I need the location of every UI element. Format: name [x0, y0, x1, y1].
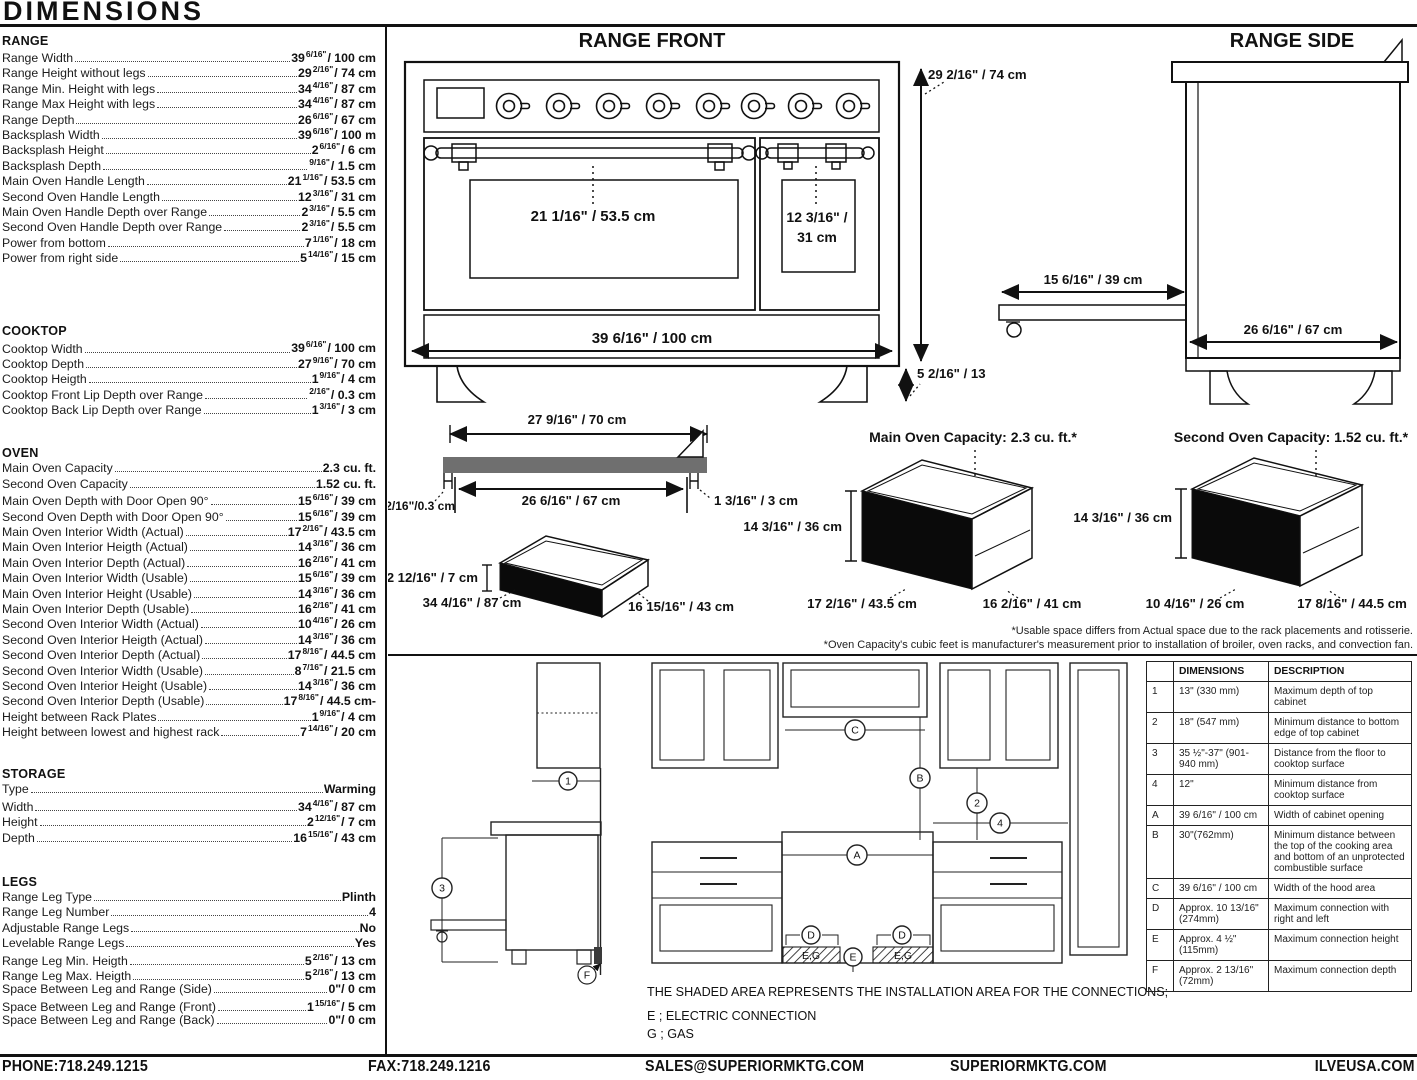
spec-label: Range Max Height with legs — [2, 97, 155, 111]
spec-value: 4 — [369, 905, 376, 919]
main-handle-dim: 21 1/16" / 53.5 cm — [531, 208, 656, 225]
spec-value: 143/16"/ 36 cm — [298, 538, 376, 554]
marker-B: B — [916, 773, 923, 785]
spec-row: Main Oven Depth with Door Open 90° 156/1… — [2, 492, 376, 507]
dotted-leader — [94, 900, 341, 901]
spec-value: 9/16"/ 1.5 cm — [308, 157, 376, 173]
spec-value: 212/16"/ 7 cm — [307, 813, 376, 829]
spec-value: 0"/ 0 cm — [328, 982, 376, 996]
door-caster — [1007, 323, 1021, 337]
row-description: Maximum connection depth — [1269, 961, 1412, 992]
spec-row: Main Oven Handle Length 211/16"/ 53.5 cm — [2, 172, 376, 187]
main-oven-handle — [424, 144, 756, 170]
spec-value: 396/16"/ 100 cm — [291, 339, 376, 355]
spec-label: Range Depth — [2, 113, 74, 127]
spec-label: Main Oven Interior Heigth (Actual) — [2, 540, 188, 554]
row-id: 4 — [1147, 775, 1174, 806]
section-title: RANGE — [2, 34, 376, 48]
spec-row: Range Leg Number 4 — [2, 905, 376, 920]
dotted-leader — [157, 107, 297, 108]
dotted-leader — [209, 215, 300, 216]
spec-row: Main Oven Interior Depth (Actual) 162/16… — [2, 554, 376, 569]
dotted-leader — [130, 964, 304, 965]
dotted-leader — [86, 367, 297, 368]
spec-value: 1.52 cu. ft. — [316, 477, 376, 491]
dotted-leader — [148, 76, 297, 77]
spec-value: 71/16"/ 18 cm — [305, 234, 376, 250]
main-oven-height-dim: 14 3/16" / 36 cm — [743, 519, 842, 534]
marker-F: F — [584, 970, 590, 982]
front-right-leg — [820, 366, 867, 402]
marker-D-left: D — [807, 930, 815, 942]
spec-value: 13/16"/ 3 cm — [312, 401, 376, 417]
marker-E: E — [849, 952, 856, 964]
spec-row: Range Width 396/16"/ 100 cm — [2, 49, 376, 64]
drawer-height-dim: 2 12/16" / 7 cm — [388, 570, 478, 585]
spec-row: Second Oven Capacity 1.52 cu. ft. — [2, 477, 376, 492]
row-id: A — [1147, 806, 1174, 826]
footer-ilve-site: ILVEUSA.COM — [1315, 1058, 1415, 1076]
range-diagrams: RANGE FRONT — [388, 26, 1417, 655]
storage-drawer-diagram: 2 12/16" / 7 cm 34 4/16" / 87 cm 16 15/1… — [388, 536, 734, 617]
dotted-leader — [131, 931, 358, 932]
install-dimensions-table: DIMENSIONS DESCRIPTION 1 13" (330 mm) Ma… — [1146, 661, 1412, 992]
dotted-leader — [115, 471, 322, 472]
second-oven-height-dim: 14 3/16" / 36 cm — [1073, 510, 1172, 525]
install-side-view: 1 F 3 — [431, 663, 602, 984]
spec-row: Adjustable Range Legs No — [2, 921, 376, 936]
range-height-dim: 29 2/16" / 74 cm — [928, 67, 1027, 82]
footer-email: SALES@SUPERIORMKTG.COM — [645, 1058, 864, 1076]
spec-value: 104/16"/ 26 cm — [298, 615, 376, 631]
door-open-dim: 15 6/16" / 39 cm — [1044, 272, 1143, 287]
legend-gas: G ; GAS — [647, 1027, 694, 1041]
spec-value: 2/16"/ 0.3 cm — [308, 386, 376, 402]
spec-value: 87/16"/ 21.5 cm — [295, 662, 376, 678]
second-handle-dim-2: 31 cm — [797, 229, 837, 245]
spec-label: Range Leg Type — [2, 890, 92, 904]
spec-row: Second Oven Interior Depth (Usable) 178/… — [2, 692, 376, 707]
main-oven-panel — [862, 491, 972, 589]
spec-row: Cooktop Back Lip Depth over Range 13/16"… — [2, 401, 376, 416]
spec-value: 19/16"/ 4 cm — [312, 370, 376, 386]
spec-label: Second Oven Interior Heigth (Actual) — [2, 633, 203, 647]
install-elevation: C B 2 4 A — [652, 663, 1127, 972]
spec-row: Cooktop Width 396/16"/ 100 cm — [2, 339, 376, 354]
side-left-leg — [1210, 371, 1248, 404]
spec-label: Adjustable Range Legs — [2, 921, 129, 935]
eg-label-left: E,G — [802, 950, 820, 962]
spec-label: Main Oven Interior Width (Usable) — [2, 571, 188, 585]
spec-section-oven: OVEN Main Oven Capacity 2.3 cu. ft. Seco… — [2, 446, 376, 738]
spec-label: Range Leg Min. Heigth — [2, 954, 128, 968]
eg-label-right: E,G — [894, 950, 912, 962]
spec-row: Cooktop Heigth 19/16"/ 4 cm — [2, 370, 376, 385]
row-id: D — [1147, 899, 1174, 930]
spec-value: 514/16"/ 15 cm — [300, 249, 376, 265]
spec-column: RANGE Range Width 396/16"/ 100 cm Range … — [0, 27, 387, 1054]
col-description: DESCRIPTION — [1269, 662, 1412, 682]
spec-label: Second Oven Interior Depth (Actual) — [2, 648, 200, 662]
row-dimension: 39 6/16" / 100 cm — [1174, 879, 1269, 899]
row-dimension: 35 ½"-37" (901-940 mm) — [1174, 744, 1269, 775]
dotted-leader — [31, 792, 323, 793]
spec-row: Main Oven Interior Heigth (Actual) 143/1… — [2, 538, 376, 553]
spec-row: Second Oven Interior Width (Actual) 104/… — [2, 615, 376, 630]
row-dimension: 13" (330 mm) — [1174, 682, 1269, 713]
dotted-leader — [133, 979, 304, 980]
dotted-leader — [224, 230, 300, 231]
spec-value: 344/16"/ 87 cm — [298, 80, 376, 96]
table-row: D Approx. 10 13/16" (274mm) Maximum conn… — [1147, 899, 1412, 930]
marker-1: 1 — [565, 776, 571, 788]
spec-row: Depth 1615/16"/ 43 cm — [2, 829, 376, 844]
leg-height-dim: 5 2/16" / 13 — [917, 366, 986, 381]
spec-label: Width — [2, 800, 33, 814]
range-front-diagram: RANGE FRONT — [405, 30, 1027, 402]
table-row: A 39 6/16" / 100 cm Width of cabinet ope… — [1147, 806, 1412, 826]
spec-value: 19/16"/ 4 cm — [312, 708, 376, 724]
dotted-leader — [191, 612, 297, 613]
spec-label: Second Oven Interior Height (Usable) — [2, 679, 207, 693]
spec-label: Range Height without legs — [2, 66, 146, 80]
spec-value: 344/16"/ 87 cm — [298, 798, 376, 814]
row-id: 1 — [1147, 682, 1174, 713]
spec-value: 266/16"/ 67 cm — [298, 111, 376, 127]
legend-electric: E ; ELECTRIC CONNECTION — [647, 1009, 816, 1023]
dotted-leader — [89, 382, 311, 383]
second-oven-width-dim: 10 4/16" / 26 cm — [1146, 596, 1245, 611]
dotted-leader — [205, 398, 307, 399]
spec-label: Power from right side — [2, 251, 118, 265]
dotted-leader — [194, 597, 297, 598]
spec-row: Levelable Range Legs Yes — [2, 936, 376, 951]
open-door-shelf — [999, 305, 1186, 320]
spec-row: Range Leg Min. Heigth 52/16"/ 13 cm — [2, 952, 376, 967]
dotted-leader — [147, 184, 287, 185]
spec-label: Second Oven Depth with Door Open 90° — [2, 510, 224, 524]
spec-row: Space Between Leg and Range (Back) 0"/ 0… — [2, 1013, 376, 1028]
drawer-depth-dim: 16 15/16" / 43 cm — [628, 599, 734, 614]
back-lip-dim: 1 3/16" / 3 cm — [714, 493, 798, 508]
row-dimension: 12" — [1174, 775, 1269, 806]
dotted-leader — [35, 810, 297, 811]
spec-row: Power from bottom 71/16"/ 18 cm — [2, 234, 376, 249]
spec-value: 143/16"/ 36 cm — [298, 585, 376, 601]
spec-label: Range Min. Height with legs — [2, 82, 155, 96]
spec-row: Main Oven Interior Depth (Usable) 162/16… — [2, 600, 376, 615]
footnote-1: *Usable space differs from Actual space … — [1011, 625, 1413, 637]
spec-row: Main Oven Capacity 2.3 cu. ft. — [2, 461, 376, 476]
dotted-leader — [201, 627, 297, 628]
connection-zone-strip — [594, 947, 602, 964]
row-description: Distance from the floor to cooktop surfa… — [1269, 744, 1412, 775]
spec-row: Second Oven Interior Heigth (Actual) 143… — [2, 631, 376, 646]
spec-label: Cooktop Heigth — [2, 372, 87, 386]
install-note: THE SHADED AREA REPRESENTS THE INSTALLAT… — [647, 985, 1168, 999]
dotted-leader — [211, 504, 297, 505]
spec-label: Space Between Leg and Range (Side) — [2, 982, 212, 996]
spec-value: 714/16"/ 20 cm — [300, 723, 376, 739]
dotted-leader — [187, 566, 297, 567]
spec-label: Main Oven Handle Depth over Range — [2, 205, 207, 219]
cooktop-inner-width-dim: 26 6/16" / 67 cm — [522, 493, 621, 508]
spec-label: Second Oven Interior Depth (Usable) — [2, 694, 204, 708]
marker-D-right: D — [898, 930, 906, 942]
spec-label: Cooktop Depth — [2, 357, 84, 371]
spec-label: Main Oven Depth with Door Open 90° — [2, 494, 209, 508]
spec-value: 143/16"/ 36 cm — [298, 677, 376, 693]
spec-row: Backsplash Depth 9/16"/ 1.5 cm — [2, 157, 376, 172]
second-oven-capacity-title: Second Oven Capacity: 1.52 cu. ft.* — [1174, 429, 1409, 445]
row-dimension: Approx. 2 13/16" (72mm) — [1174, 961, 1269, 992]
spec-label: Depth — [2, 831, 35, 845]
marker-4: 4 — [997, 818, 1003, 830]
range-depth-dim: 26 6/16" / 67 cm — [1244, 322, 1343, 337]
spec-row: Second Oven Handle Length 123/16"/ 31 cm — [2, 188, 376, 203]
spec-value: 156/16"/ 39 cm — [298, 569, 376, 585]
spec-row: Main Oven Interior Width (Usable) 156/16… — [2, 569, 376, 584]
dotted-leader — [226, 520, 297, 521]
row-description: Minimum distance between the top of the … — [1269, 826, 1412, 879]
spec-value: 292/16"/ 74 cm — [298, 64, 376, 80]
spec-value: 396/16"/ 100 m — [298, 126, 376, 142]
row-dimension: Approx. 4 ½" (115mm) — [1174, 930, 1269, 961]
dotted-leader — [75, 61, 290, 62]
dotted-leader — [162, 200, 297, 201]
dotted-leader — [37, 841, 292, 842]
drawer-width-dim: 34 4/16" / 87 cm — [423, 595, 522, 610]
spec-label: Range Leg Max. Heigth — [2, 969, 131, 983]
dotted-leader — [40, 825, 306, 826]
footer-rule — [0, 1054, 1417, 1057]
spec-row: Space Between Leg and Range (Front) 115/… — [2, 998, 376, 1013]
spec-value: 52/16"/ 13 cm — [305, 967, 376, 983]
spec-row: Second Oven Handle Depth over Range 23/1… — [2, 218, 376, 233]
row-dimension: 18" (547 mm) — [1174, 713, 1269, 744]
spec-label: Backsplash Height — [2, 143, 104, 157]
spec-row: Range Leg Type Plinth — [2, 890, 376, 905]
dotted-leader — [214, 992, 328, 993]
main-oven-depth-dim: 16 2/16" / 41 cm — [983, 596, 1082, 611]
second-handle-dim-1: 12 3/16" / — [786, 209, 847, 225]
main-oven-capacity-title: Main Oven Capacity: 2.3 cu. ft.* — [869, 429, 1077, 445]
front-lip-dim: 2/16"/0.3 cm — [388, 499, 455, 513]
dotted-leader — [205, 674, 294, 675]
spec-value: 2.3 cu. ft. — [323, 461, 376, 475]
footer-fax: FAX:718.249.1216 — [368, 1058, 491, 1076]
dotted-leader — [106, 153, 311, 154]
spec-label: Cooktop Back Lip Depth over Range — [2, 403, 202, 417]
spec-row: Backsplash Height 26/16"/ 6 cm — [2, 141, 376, 156]
row-id: E — [1147, 930, 1174, 961]
row-description: Maximum connection with right and left — [1269, 899, 1412, 930]
spec-row: Cooktop Front Lip Depth over Range 2/16"… — [2, 386, 376, 401]
spec-row: Main Oven Handle Depth over Range 23/16"… — [2, 203, 376, 218]
control-display — [437, 88, 484, 118]
spec-row: Width 344/16"/ 87 cm — [2, 798, 376, 813]
dotted-leader — [190, 550, 297, 551]
table-row: F Approx. 2 13/16" (72mm) Maximum connec… — [1147, 961, 1412, 992]
spec-row: Cooktop Depth 279/16"/ 70 cm — [2, 355, 376, 370]
spec-value: 396/16"/ 100 cm — [291, 49, 376, 65]
dotted-leader — [221, 735, 299, 736]
section-title: COOKTOP — [2, 324, 376, 338]
second-oven-panel — [1192, 489, 1300, 586]
spec-label: Main Oven Interior Height (Usable) — [2, 587, 192, 601]
spec-value: 178/16"/ 44.5 cm — [288, 646, 376, 662]
spec-value: 344/16"/ 87 cm — [298, 95, 376, 111]
spec-label: Second Oven Interior Width (Actual) — [2, 617, 199, 631]
spec-row: Range Min. Height with legs 344/16"/ 87 … — [2, 80, 376, 95]
table-row: 2 18" (547 mm) Minimum distance to botto… — [1147, 713, 1412, 744]
row-description: Width of cabinet opening — [1269, 806, 1412, 826]
row-id: C — [1147, 879, 1174, 899]
footer-phone: PHONE:718.249.1215 — [2, 1058, 148, 1076]
spec-value: 1615/16"/ 43 cm — [293, 829, 376, 845]
dotted-leader — [126, 946, 353, 947]
row-id: 2 — [1147, 713, 1174, 744]
spec-label: Main Oven Interior Width (Actual) — [2, 525, 184, 539]
spec-value: 156/16"/ 39 cm — [298, 492, 376, 508]
range-front-title: RANGE FRONT — [579, 30, 726, 52]
row-description: Minimum distance to bottom edge of top c… — [1269, 713, 1412, 744]
spec-value: 0"/ 0 cm — [328, 1013, 376, 1027]
spec-row: Second Oven Depth with Door Open 90° 156… — [2, 508, 376, 523]
row-id: B — [1147, 826, 1174, 879]
dotted-leader — [186, 535, 287, 536]
spec-label: Power from bottom — [2, 236, 106, 250]
row-description: Minimum distance from cooktop surface — [1269, 775, 1412, 806]
table-row: C 39 6/16" / 100 cm Width of the hood ar… — [1147, 879, 1412, 899]
spec-label: Height between Rack Plates — [2, 710, 156, 724]
spec-row: Power from right side 514/16"/ 15 cm — [2, 249, 376, 264]
marker-C: C — [851, 725, 859, 737]
spec-label: Height — [2, 815, 38, 829]
spec-label: Range Width — [2, 51, 73, 65]
dotted-leader — [85, 352, 291, 353]
spec-label: Height between lowest and highest rack — [2, 725, 219, 739]
cooktop-width-dim: 27 9/16" / 70 cm — [528, 412, 627, 427]
spec-label: Space Between Leg and Range (Back) — [2, 1013, 215, 1027]
spec-row: Height between Rack Plates 19/16"/ 4 cm — [2, 708, 376, 723]
spec-row: Range Max Height with legs 344/16"/ 87 c… — [2, 95, 376, 110]
dotted-leader — [111, 915, 368, 916]
spec-value: 172/16"/ 43.5 cm — [288, 523, 376, 539]
spec-row: Height between lowest and highest rack 7… — [2, 723, 376, 738]
marker-2: 2 — [974, 798, 980, 810]
spec-section-storage: STORAGE Type Warming Width 344/16"/ 87 c… — [2, 767, 376, 844]
row-description: Width of the hood area — [1269, 879, 1412, 899]
dotted-leader — [205, 643, 297, 644]
spec-label: Type — [2, 782, 29, 796]
section-title: LEGS — [2, 875, 376, 889]
col-dimensions: DIMENSIONS — [1174, 662, 1269, 682]
spec-row: Range Height without legs 292/16"/ 74 cm — [2, 64, 376, 79]
spec-label: Second Oven Handle Depth over Range — [2, 220, 222, 234]
spec-value: No — [360, 921, 376, 935]
spec-value: 23/16"/ 5.5 cm — [301, 218, 376, 234]
cooktop-profile-diagram: 27 9/16" / 70 cm 26 6/16" / 67 cm 2/16"/… — [388, 412, 798, 513]
spec-row: Second Oven Interior Width (Usable) 87/1… — [2, 662, 376, 677]
dotted-leader — [209, 689, 297, 690]
spec-value: 23/16"/ 5.5 cm — [301, 203, 376, 219]
table-row: E Approx. 4 ½" (115mm) Maximum connectio… — [1147, 930, 1412, 961]
row-dimension: 39 6/16" / 100 cm — [1174, 806, 1269, 826]
spec-label: Main Oven Interior Depth (Actual) — [2, 556, 185, 570]
spec-row: Backsplash Width 396/16"/ 100 m — [2, 126, 376, 141]
dotted-leader — [103, 169, 307, 170]
spec-value: 162/16"/ 41 cm — [298, 600, 376, 616]
spec-row: Main Oven Interior Height (Usable) 143/1… — [2, 585, 376, 600]
row-description: Maximum depth of top cabinet — [1269, 682, 1412, 713]
dotted-leader — [202, 658, 287, 659]
spec-value: 178/16"/ 44.5 cm- — [284, 692, 376, 708]
spec-label: Second Oven Handle Length — [2, 190, 160, 204]
range-width-dim: 39 6/16" / 100 cm — [592, 330, 713, 347]
dotted-leader — [158, 720, 310, 721]
spec-value: 143/16"/ 36 cm — [298, 631, 376, 647]
footer-site: SUPERIORMKTG.COM — [950, 1058, 1107, 1076]
main-oven-capacity-diagram: Main Oven Capacity: 2.3 cu. ft.* 14 3/16… — [743, 429, 1081, 611]
spec-section-legs: LEGS Range Leg Type Plinth Range Leg Num… — [2, 875, 376, 1029]
spec-value: Plinth — [342, 890, 376, 904]
spec-row: Main Oven Interior Width (Actual) 172/16… — [2, 523, 376, 538]
spec-row: Height 212/16"/ 7 cm — [2, 813, 376, 828]
col-id — [1147, 662, 1174, 682]
dotted-leader — [130, 487, 315, 488]
second-oven-depth-dim: 17 8/16" / 44.5 cm — [1297, 596, 1407, 611]
spec-label: Second Oven Capacity — [2, 477, 128, 491]
page-title: DIMENSIONS — [3, 0, 204, 27]
range-side-diagram: RANGE SIDE 15 6/16" / 39 cm 26 6/16" / 6… — [999, 30, 1408, 404]
dotted-leader — [218, 1010, 306, 1011]
spec-value: Yes — [355, 936, 376, 950]
dotted-leader — [206, 704, 282, 705]
row-id: 3 — [1147, 744, 1174, 775]
spec-value: 279/16"/ 70 cm — [298, 355, 376, 371]
spec-value: 115/16"/ 5 cm — [307, 998, 376, 1014]
row-dimension: Approx. 10 13/16" (274mm) — [1174, 899, 1269, 930]
section-title: STORAGE — [2, 767, 376, 781]
spec-value: 162/16"/ 41 cm — [298, 554, 376, 570]
dotted-leader — [120, 261, 299, 262]
table-row: 4 12" Minimum distance from cooktop surf… — [1147, 775, 1412, 806]
backsplash-profile — [1384, 40, 1402, 62]
spec-value: 211/16"/ 53.5 cm — [288, 172, 376, 188]
footnote-2: *Oven Capacity's cubic feet is manufactu… — [824, 639, 1413, 651]
row-id: F — [1147, 961, 1174, 992]
dotted-leader — [217, 1023, 328, 1024]
spec-label: Space Between Leg and Range (Front) — [2, 1000, 216, 1014]
row-dimension: 30"(762mm) — [1174, 826, 1269, 879]
spec-label: Main Oven Handle Length — [2, 174, 145, 188]
dotted-leader — [108, 246, 304, 247]
table-header-row: DIMENSIONS DESCRIPTION — [1147, 662, 1412, 682]
dotted-leader — [190, 581, 297, 582]
dimensions-sheet: DIMENSIONS RANGE Range Width 396/16"/ 10… — [0, 0, 1417, 1080]
spec-value: 26/16"/ 6 cm — [312, 141, 376, 157]
spec-value: 156/16"/ 39 cm — [298, 508, 376, 524]
spec-value: 123/16"/ 31 cm — [298, 188, 376, 204]
spec-label: Second Oven Interior Width (Usable) — [2, 664, 203, 678]
row-description: Maximum connection height — [1269, 930, 1412, 961]
spec-section-range: RANGE Range Width 396/16"/ 100 cm Range … — [2, 34, 376, 264]
spec-row: Range Depth 266/16"/ 67 cm — [2, 111, 376, 126]
spec-label: Cooktop Width — [2, 342, 83, 356]
dotted-leader — [102, 138, 297, 139]
second-oven-capacity-diagram: Second Oven Capacity: 1.52 cu. ft.* 14 3… — [1073, 429, 1408, 611]
